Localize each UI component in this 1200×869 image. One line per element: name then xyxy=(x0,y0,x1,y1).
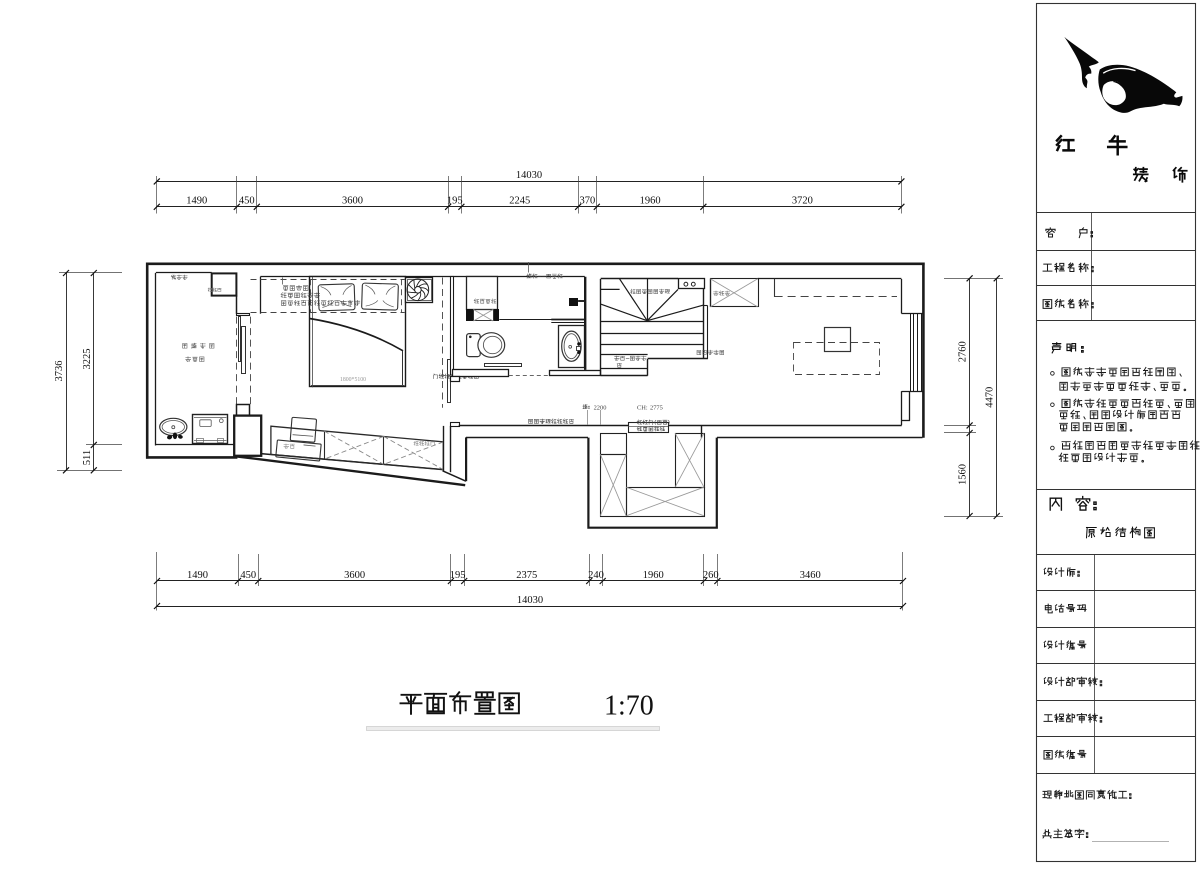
svg-text:1800*5100: 1800*5100 xyxy=(340,377,366,383)
svg-text:3600: 3600 xyxy=(344,570,365,581)
svg-text:260: 260 xyxy=(703,570,719,581)
svg-text:2200: 2200 xyxy=(594,404,607,411)
svg-text:3225: 3225 xyxy=(82,349,93,370)
svg-text:4470: 4470 xyxy=(985,387,996,408)
svg-text:511: 511 xyxy=(82,450,93,465)
svg-text:450: 450 xyxy=(240,570,256,581)
svg-text:1960: 1960 xyxy=(643,570,664,581)
svg-text:CH:: CH: xyxy=(637,404,648,411)
svg-text:3720: 3720 xyxy=(792,196,813,207)
svg-text:370: 370 xyxy=(580,196,596,207)
svg-text:1:70: 1:70 xyxy=(604,691,654,722)
svg-text:3736: 3736 xyxy=(54,361,65,382)
svg-text:1960: 1960 xyxy=(640,196,661,207)
svg-text:240: 240 xyxy=(588,570,604,581)
svg-text:2245: 2245 xyxy=(509,196,530,207)
svg-text:1490: 1490 xyxy=(186,196,207,207)
svg-text:1560: 1560 xyxy=(958,464,969,485)
svg-text:2375: 2375 xyxy=(516,570,537,581)
svg-text:450: 450 xyxy=(239,196,255,207)
svg-text:2760: 2760 xyxy=(958,341,969,362)
svg-text:195: 195 xyxy=(450,570,466,581)
svg-text:3600: 3600 xyxy=(342,196,363,207)
svg-text:1490: 1490 xyxy=(187,570,208,581)
svg-text:2775: 2775 xyxy=(650,404,663,411)
svg-text:3460: 3460 xyxy=(800,570,821,581)
svg-text:195: 195 xyxy=(447,196,463,207)
svg-text:14030: 14030 xyxy=(517,595,543,606)
svg-text:14030: 14030 xyxy=(516,170,542,181)
